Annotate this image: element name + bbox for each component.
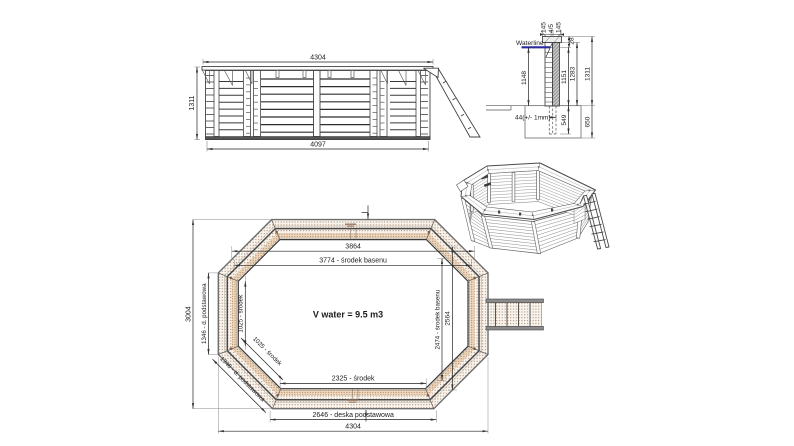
svg-text:1025 - środek: 1025 - środek	[238, 294, 245, 333]
svg-text:4304: 4304	[345, 424, 361, 431]
svg-text:2474 - środek basenu: 2474 - środek basenu	[434, 289, 441, 349]
svg-text:4/5: 4/5	[548, 24, 555, 33]
svg-text:549: 549	[561, 114, 568, 125]
svg-text:1311: 1311	[189, 95, 196, 110]
svg-text:3004: 3004	[185, 306, 192, 322]
svg-text:1346 - d. podstawowa: 1346 - d. podstawowa	[201, 283, 208, 344]
svg-text:4097: 4097	[310, 142, 326, 149]
svg-text:1148: 1148	[521, 71, 528, 85]
svg-text:1151: 1151	[561, 70, 568, 84]
svg-text:V water = 9.5 m3: V water = 9.5 m3	[313, 310, 383, 320]
svg-text:2646 - deska podstawowa: 2646 - deska podstawowa	[313, 412, 394, 419]
svg-text:1311: 1311	[585, 67, 592, 81]
svg-text:2564: 2564	[445, 311, 452, 326]
svg-text:Waterline: Waterline	[516, 40, 544, 47]
svg-text:44(+/- 1mm): 44(+/- 1mm)	[515, 115, 551, 122]
svg-text:145: 145	[541, 22, 548, 33]
svg-text:3864: 3864	[345, 244, 361, 251]
svg-text:4304: 4304	[310, 55, 326, 62]
svg-text:650: 650	[585, 116, 592, 127]
svg-text:28: 28	[569, 37, 576, 45]
svg-text:1283: 1283	[570, 66, 577, 81]
svg-text:3774 - środek basenu: 3774 - środek basenu	[319, 258, 387, 265]
svg-text:145: 145	[556, 22, 563, 33]
svg-text:2325 - środek: 2325 - środek	[332, 376, 375, 383]
